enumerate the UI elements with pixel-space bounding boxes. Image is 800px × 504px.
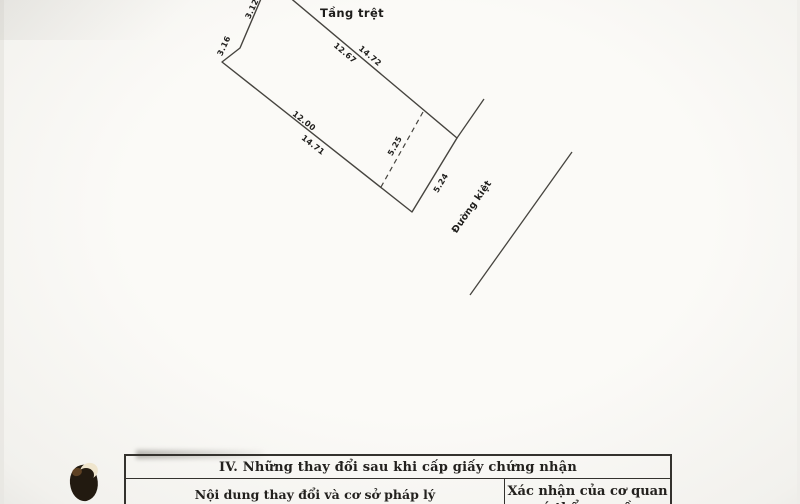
changes-table-header-row: Nội dung thay đổi và cơ sở pháp lý Xác n… (126, 479, 670, 504)
parcel-sketch (0, 0, 800, 330)
changes-content-header: Nội dung thay đổi và cơ sở pháp lý (126, 479, 505, 504)
road-near-edge-line (457, 99, 484, 138)
authority-confirm-line1: Xác nhận của cơ quan (507, 483, 667, 500)
authority-confirm-header: Xác nhận của cơ quan có thẩm quyền (505, 479, 670, 504)
changes-table-title: IV. Những thay đổi sau khi cấp giấy chứn… (126, 456, 670, 479)
authority-confirm-line2: có thẩm quyền (534, 500, 641, 504)
stamp-logo-fragment (68, 462, 102, 504)
road-far-edge-line (470, 152, 572, 295)
parcel-outline (222, 0, 457, 212)
scanned-certificate-page: Tầng trệt 3.12 3.16 12.67 14.72 12.00 14… (0, 0, 800, 504)
floor-label: Tầng trệt (320, 6, 384, 20)
changes-table: IV. Những thay đổi sau khi cấp giấy chứn… (124, 454, 672, 504)
